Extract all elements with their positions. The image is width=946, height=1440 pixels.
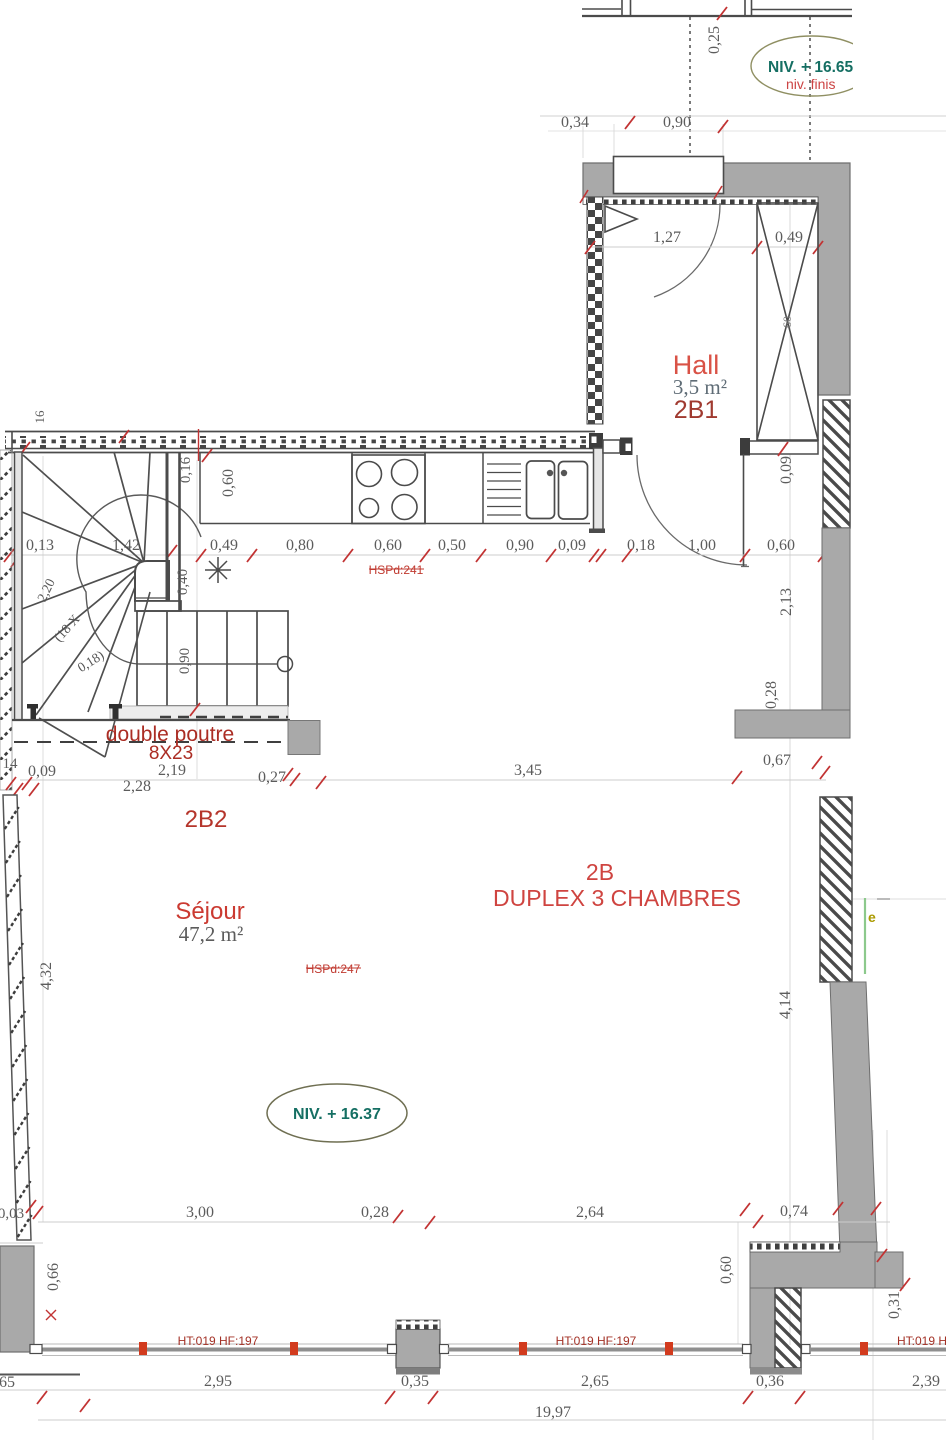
svg-text:0,60: 0,60 bbox=[220, 469, 237, 497]
svg-text:0,31: 0,31 bbox=[886, 1291, 903, 1319]
svg-text:0,09: 0,09 bbox=[778, 456, 795, 484]
svg-text:0,60: 0,60 bbox=[374, 537, 402, 554]
svg-text:1,27: 1,27 bbox=[653, 229, 681, 246]
svg-text:Séjour: Séjour bbox=[175, 898, 244, 925]
svg-text:0,66: 0,66 bbox=[45, 1263, 62, 1291]
svg-text:2,65: 2,65 bbox=[581, 1373, 609, 1390]
svg-text:0,90: 0,90 bbox=[663, 114, 691, 131]
svg-text:2,95: 2,95 bbox=[204, 1373, 232, 1390]
svg-text:HSPd:247: HSPd:247 bbox=[306, 962, 361, 976]
svg-text:0,03: 0,03 bbox=[0, 1206, 24, 1222]
svg-text:HT:019 HF:197: HT:019 HF:197 bbox=[897, 1334, 946, 1348]
svg-text:2B1: 2B1 bbox=[674, 396, 718, 424]
svg-text:HSPd:241: HSPd:241 bbox=[369, 563, 424, 577]
svg-text:0,49: 0,49 bbox=[210, 537, 238, 554]
svg-text:2,39: 2,39 bbox=[912, 1373, 940, 1390]
svg-text:0,36: 0,36 bbox=[756, 1373, 784, 1390]
svg-text:0,67: 0,67 bbox=[763, 752, 791, 769]
svg-text:65: 65 bbox=[0, 1374, 15, 1391]
svg-text:14: 14 bbox=[3, 756, 19, 772]
svg-text:e: e bbox=[868, 909, 876, 925]
svg-text:2,19: 2,19 bbox=[158, 762, 186, 779]
svg-text:DUPLEX 3 CHAMBRES: DUPLEX 3 CHAMBRES bbox=[493, 885, 741, 911]
svg-text:47,2 m²: 47,2 m² bbox=[179, 922, 244, 946]
svg-text:0,40: 0,40 bbox=[175, 569, 191, 595]
svg-text:0,25: 0,25 bbox=[706, 26, 723, 54]
svg-text:2,28: 2,28 bbox=[123, 778, 151, 795]
svg-text:0,09: 0,09 bbox=[558, 537, 586, 554]
svg-text:60: 60 bbox=[780, 316, 794, 328]
svg-text:2,13: 2,13 bbox=[778, 588, 795, 616]
svg-text:2B: 2B bbox=[586, 859, 614, 885]
svg-text:3,45: 3,45 bbox=[514, 762, 542, 779]
svg-text:0,90: 0,90 bbox=[177, 648, 193, 674]
svg-text:HT:019 HF:197: HT:019 HF:197 bbox=[556, 1334, 637, 1348]
svg-text:HT:019 HF:197: HT:019 HF:197 bbox=[178, 1334, 259, 1348]
svg-text:2,64: 2,64 bbox=[576, 1204, 604, 1221]
svg-text:0,13: 0,13 bbox=[26, 537, 54, 554]
svg-text:8X23: 8X23 bbox=[149, 743, 193, 764]
svg-text:0,60: 0,60 bbox=[718, 1256, 735, 1284]
svg-text:0,27: 0,27 bbox=[258, 769, 286, 786]
svg-text:0,28: 0,28 bbox=[361, 1204, 389, 1221]
svg-text:NIV. + 16.65: NIV. + 16.65 bbox=[768, 59, 854, 76]
svg-text:0,50: 0,50 bbox=[438, 537, 466, 554]
svg-text:0,28: 0,28 bbox=[763, 681, 780, 709]
svg-text:0,34: 0,34 bbox=[561, 114, 589, 131]
svg-text:0,49: 0,49 bbox=[775, 229, 803, 246]
svg-text:16: 16 bbox=[32, 410, 47, 424]
svg-text:1,00: 1,00 bbox=[688, 537, 716, 554]
svg-text:0,80: 0,80 bbox=[286, 537, 314, 554]
svg-text:3,00: 3,00 bbox=[186, 1204, 214, 1221]
svg-text:0,60: 0,60 bbox=[767, 537, 795, 554]
svg-text:4,14: 4,14 bbox=[777, 991, 794, 1019]
svg-text:0,90: 0,90 bbox=[506, 537, 534, 554]
svg-text:2B2: 2B2 bbox=[185, 806, 228, 833]
svg-text:niv. finis: niv. finis bbox=[786, 76, 836, 92]
svg-text:0,35: 0,35 bbox=[401, 1373, 429, 1390]
svg-text:0,16: 0,16 bbox=[178, 456, 194, 483]
svg-text:4,32: 4,32 bbox=[38, 962, 55, 990]
svg-text:NIV. + 16.37: NIV. + 16.37 bbox=[293, 1106, 381, 1123]
svg-text:0,74: 0,74 bbox=[780, 1203, 808, 1220]
svg-text:19,97: 19,97 bbox=[535, 1404, 571, 1421]
